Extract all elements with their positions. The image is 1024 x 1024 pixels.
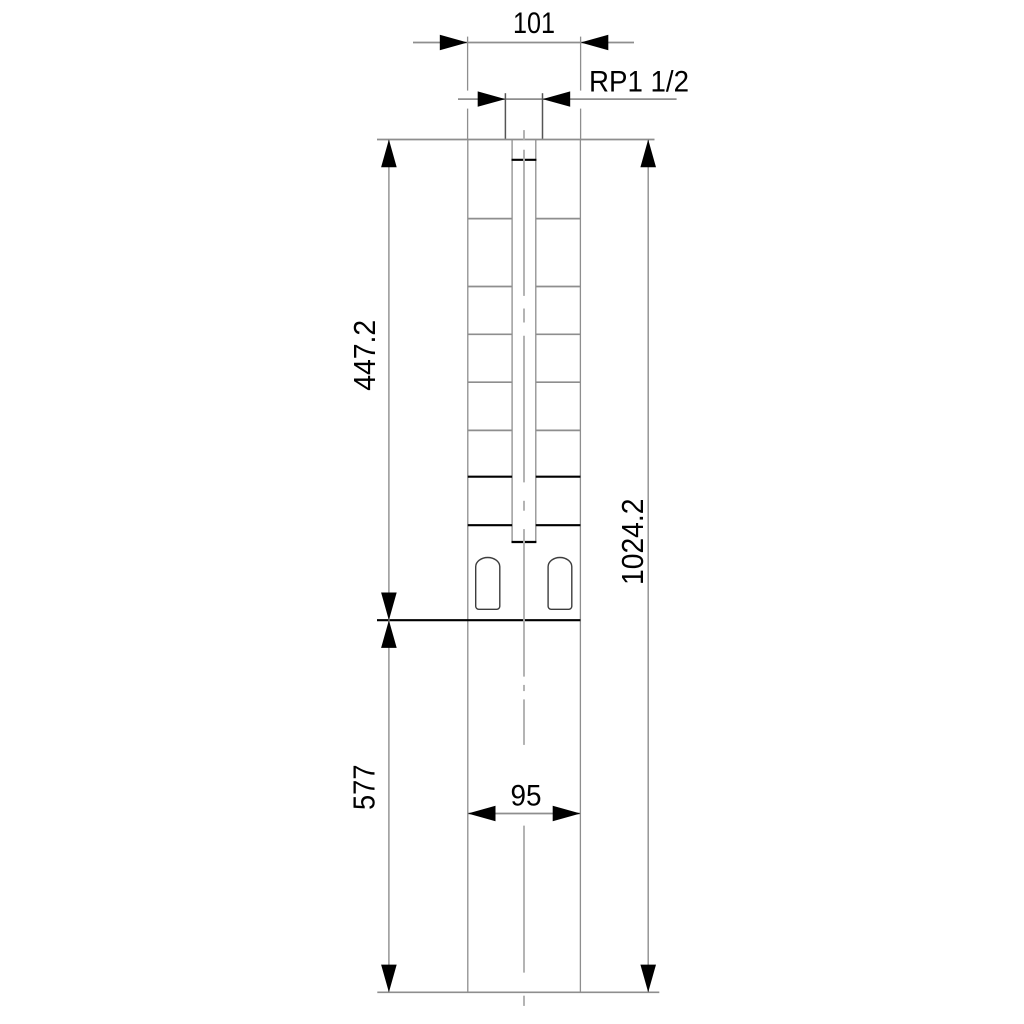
svg-text:1024.2: 1024.2 [615, 499, 650, 586]
svg-text:101: 101 [513, 7, 555, 40]
svg-text:447.2: 447.2 [347, 320, 382, 391]
svg-text:577: 577 [347, 765, 382, 811]
svg-text:RP1 1/2: RP1 1/2 [589, 66, 689, 99]
svg-text:95: 95 [511, 780, 542, 813]
